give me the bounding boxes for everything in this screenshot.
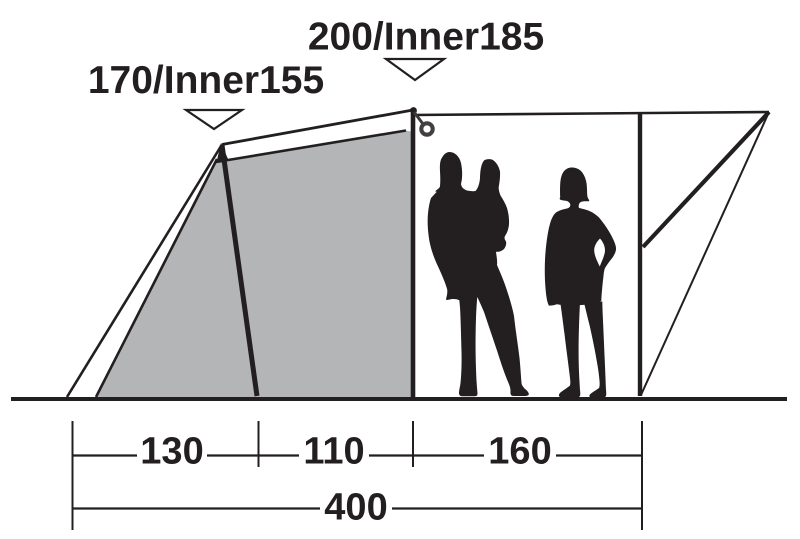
svg-text:160: 160 — [488, 431, 551, 473]
svg-text:400: 400 — [324, 487, 387, 529]
svg-text:170/Inner155: 170/Inner155 — [88, 59, 324, 102]
svg-text:130: 130 — [140, 431, 203, 473]
svg-text:110: 110 — [303, 431, 364, 473]
svg-text:200/Inner185: 200/Inner185 — [308, 16, 544, 59]
